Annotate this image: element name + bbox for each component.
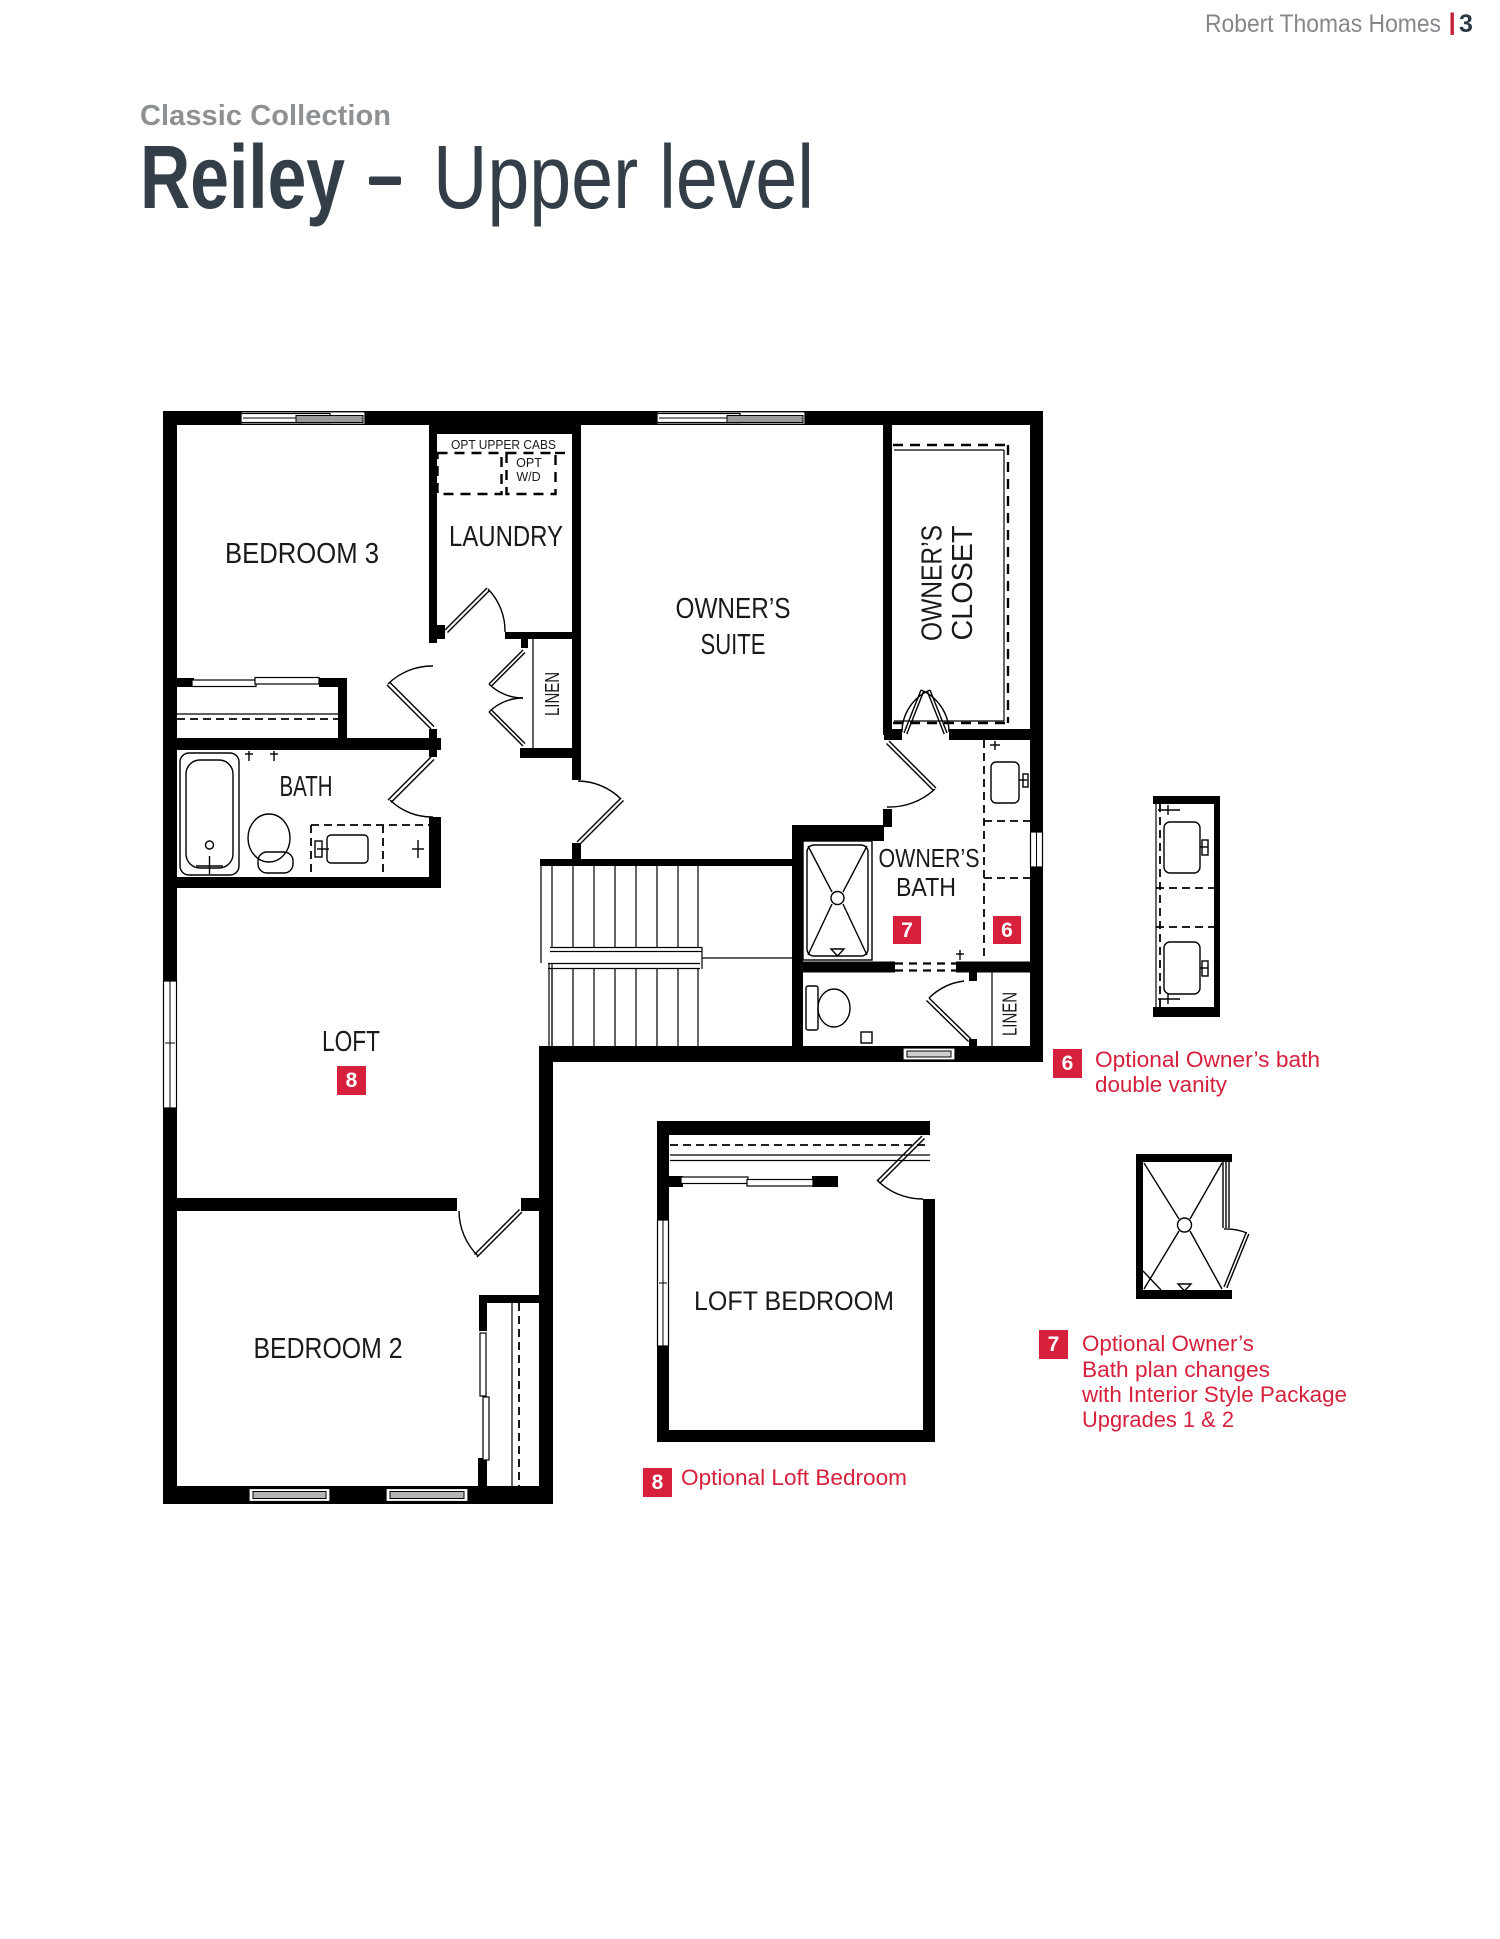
svg-text:Optional Owner’s bath: Optional Owner’s bath [1095,1047,1320,1072]
svg-text:7: 7 [901,919,913,942]
svg-text:BATH: BATH [896,872,956,902]
svg-text:LOFT BEDROOM: LOFT BEDROOM [694,1286,894,1316]
svg-text:double vanity: double vanity [1095,1072,1227,1097]
svg-text:Upgrades 1 & 2: Upgrades 1 & 2 [1082,1407,1234,1432]
svg-text:LOFT: LOFT [322,1026,380,1058]
svg-text:CLOSET: CLOSET [947,525,979,640]
svg-text:8: 8 [652,1471,664,1494]
svg-text:8: 8 [346,1069,358,1092]
svg-text:LINEN: LINEN [542,672,564,716]
svg-text:OWNER’S: OWNER’S [917,525,949,641]
svg-text:with Interior Style Package: with Interior Style Package [1081,1382,1347,1407]
svg-text:W/D: W/D [516,470,540,484]
svg-text:OPT UPPER CABS: OPT UPPER CABS [451,438,556,452]
svg-text:Bath plan changes: Bath plan changes [1082,1357,1270,1382]
svg-text:OWNER’S: OWNER’S [879,843,980,873]
svg-text:LINEN: LINEN [1000,992,1022,1036]
svg-text:Reiley: Reiley [140,128,345,228]
svg-text:BEDROOM 3: BEDROOM 3 [225,538,379,570]
svg-text:Robert Thomas Homes: Robert Thomas Homes [1205,10,1441,38]
svg-text:6: 6 [1001,919,1013,942]
svg-text:Optional Owner’s: Optional Owner’s [1082,1331,1254,1356]
svg-text:BEDROOM 2: BEDROOM 2 [254,1333,403,1365]
svg-text:OPT: OPT [516,456,542,470]
svg-text:7: 7 [1048,1333,1060,1356]
svg-text:6: 6 [1062,1052,1074,1075]
svg-text:BATH: BATH [280,771,333,803]
svg-text:LAUNDRY: LAUNDRY [449,521,563,553]
svg-text:SUITE: SUITE [701,629,766,661]
svg-text:3: 3 [1459,10,1473,38]
svg-text:Upper level: Upper level [433,128,814,228]
svg-text:OWNER’S: OWNER’S [676,593,791,625]
svg-text:Optional Loft Bedroom: Optional Loft Bedroom [681,1465,907,1490]
